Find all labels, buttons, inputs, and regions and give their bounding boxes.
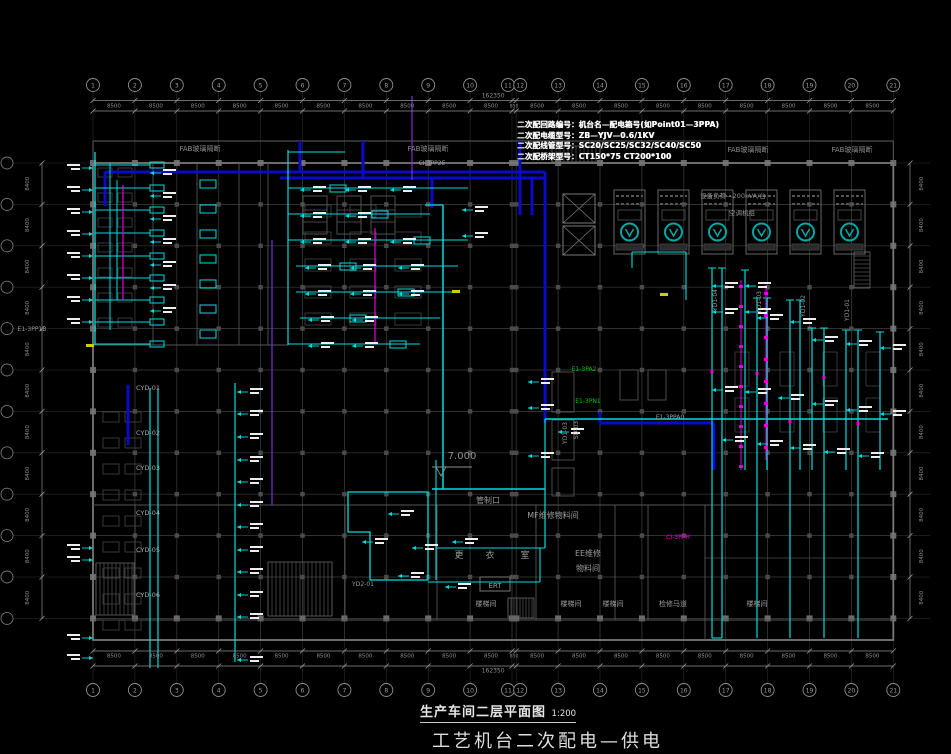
fab-zone-label: FAB玻璃隔断 xyxy=(832,145,873,154)
axis-bubble-bottom: 5 xyxy=(259,687,263,694)
axis-bubble-top: 10 xyxy=(466,82,474,89)
side-dim-left: 8400 xyxy=(25,342,31,356)
bay-dim-top: 8500 xyxy=(233,104,247,110)
side-dim-right: 8400 xyxy=(919,300,925,314)
circuit-tag: YD2-01 xyxy=(351,581,374,588)
title-block: 生产车间二层平面图 1:200 工艺机台二次配电—供电 xyxy=(420,701,663,753)
axis-bubble-top: 6 xyxy=(301,82,305,89)
bay-dim-top: 850 xyxy=(510,104,519,110)
room-label: 管制口 xyxy=(476,495,500,505)
bay-dim-bottom: 8500 xyxy=(865,654,879,660)
room-label: 楼梯间 xyxy=(747,599,768,608)
side-dim-right: 8400 xyxy=(919,425,925,439)
axis-bubble-bottom: 16 xyxy=(680,687,688,694)
machine-tag: CYD-04 xyxy=(136,509,160,517)
equipment-note: 空调机组 xyxy=(729,208,756,217)
side-dim-left: 8400 xyxy=(25,590,31,604)
bay-dim-top: 8500 xyxy=(484,104,498,110)
circuit-tag: YD1-01 xyxy=(844,299,851,322)
side-dim-right: 8400 xyxy=(919,507,925,521)
bay-dim-top: 8500 xyxy=(107,104,121,110)
axis-bubble-bottom: 20 xyxy=(848,687,856,694)
bay-dim-bottom: 8500 xyxy=(107,654,121,660)
axis-bubble-top: 3 xyxy=(175,82,179,89)
side-dim-left: 8400 xyxy=(25,549,31,563)
bay-dim-top: 8500 xyxy=(149,104,163,110)
bay-dim-bottom: 8500 xyxy=(191,654,205,660)
bay-dim-bottom: 8500 xyxy=(316,654,330,660)
room-label: 楼梯间 xyxy=(476,599,497,608)
axis-bubble-bottom: 8 xyxy=(384,687,388,694)
bay-dim-top: 8500 xyxy=(865,104,879,110)
bay-dim-bottom: 8500 xyxy=(358,654,372,660)
machine-tag: CYD-06 xyxy=(136,591,160,599)
axis-bubble-top: 19 xyxy=(806,82,814,89)
room-label: 更 xyxy=(454,550,463,561)
side-dim-left: 8400 xyxy=(25,176,31,190)
circuit-tag: E1-3PP1B xyxy=(18,326,47,333)
axis-bubble-top: 13 xyxy=(554,82,562,89)
total-dim-top: 162350 xyxy=(482,93,505,100)
axis-bubble-top: 5 xyxy=(259,82,263,89)
machine-tag: CYD-02 xyxy=(136,429,160,437)
side-dim-right: 8400 xyxy=(919,549,925,563)
total-dim-bottom: 162350 xyxy=(482,668,505,675)
legend-line: 二次配回路编号：机台名—配电箱号(如Point01—3PPA) xyxy=(517,120,719,131)
side-dim-left: 8400 xyxy=(25,383,31,397)
axis-bubble-top: 2 xyxy=(133,82,137,89)
bay-dim-bottom: 8500 xyxy=(275,654,289,660)
axis-bubble-bottom: 4 xyxy=(217,687,221,694)
bay-dim-top: 8500 xyxy=(823,104,837,110)
bay-dim-top: 8500 xyxy=(400,104,414,110)
axis-bubble-top: 16 xyxy=(680,82,688,89)
axis-bubble-top: 17 xyxy=(722,82,730,89)
circuit-tag: SD-03 xyxy=(573,421,580,439)
axis-bubble-top: 4 xyxy=(217,82,221,89)
axis-bubble-top: 18 xyxy=(764,82,772,89)
bay-dim-top: 8500 xyxy=(572,104,586,110)
drawing-title: 生产车间二层平面图 xyxy=(420,705,546,720)
bay-dim-top: 8500 xyxy=(782,104,796,110)
axis-bubble-top: 21 xyxy=(889,82,897,89)
circuit-tag: CI-3PP2E xyxy=(419,160,446,167)
bay-dim-top: 8500 xyxy=(316,104,330,110)
bay-dim-bottom: 8500 xyxy=(442,654,456,660)
axis-bubble-bottom: 1 xyxy=(91,687,95,694)
side-dim-left: 8400 xyxy=(25,466,31,480)
side-dim-left: 8400 xyxy=(25,259,31,273)
legend-line: 二次配桥架型号：CT150*75 CT200*100 xyxy=(517,152,719,163)
side-dim-right: 8400 xyxy=(919,342,925,356)
bay-dim-bottom: 8500 xyxy=(740,654,754,660)
bay-dim-bottom: 8500 xyxy=(572,654,586,660)
floor-plan-drawing: 1234567891011121314151617181920211234567… xyxy=(0,0,951,754)
equipment-note: 设备负荷—200kVA/台 xyxy=(700,191,766,200)
elevation-value: 7.000 xyxy=(448,451,477,462)
side-dim-right: 8400 xyxy=(919,218,925,232)
bay-dim-bottom: 8500 xyxy=(656,654,670,660)
axis-bubble-bottom: 9 xyxy=(426,687,430,694)
fab-zone-label: FAB玻璃隔断 xyxy=(408,144,449,153)
room-label: 物料间 xyxy=(576,563,600,573)
axis-bubble-top: 1 xyxy=(91,82,95,89)
axis-bubble-bottom: 6 xyxy=(301,687,305,694)
axis-bubble-top: 14 xyxy=(596,82,604,89)
side-dim-right: 8400 xyxy=(919,466,925,480)
axis-bubble-top: 11 xyxy=(504,82,512,89)
axis-bubble-bottom: 17 xyxy=(722,687,730,694)
room-label: 检修马道 xyxy=(659,599,687,608)
legend-line: 二次配线管型号：SC20/SC25/SC32/SC40/SC50 xyxy=(517,141,719,152)
bay-dim-top: 8500 xyxy=(442,104,456,110)
machine-tag: CYD-03 xyxy=(136,464,160,472)
circuit-tag: CI-3PPH xyxy=(666,534,690,541)
machine-tag: CYD-01 xyxy=(136,384,160,392)
bay-dim-top: 8500 xyxy=(614,104,628,110)
room-label: ERT xyxy=(488,582,502,590)
circuit-tag: E1-3PN1 xyxy=(575,398,601,405)
axis-bubble-top: 15 xyxy=(638,82,646,89)
drawing-title-line: 生产车间二层平面图 1:200 xyxy=(420,701,576,723)
axis-bubble-top: 20 xyxy=(848,82,856,89)
legend-line: 二次配电缆型号：ZB—YJV—0.6/1KV xyxy=(517,131,719,142)
side-dim-right: 8400 xyxy=(919,590,925,604)
axis-bubble-bottom: 13 xyxy=(554,687,562,694)
cad-viewport: 1234567891011121314151617181920211234567… xyxy=(0,0,951,754)
circuit-tag: YD1-04 xyxy=(712,289,719,312)
legend-notes: 二次配回路编号：机台名—配电箱号(如Point01—3PPA)二次配电缆型号：Z… xyxy=(517,120,719,162)
axis-bubble-bottom: 2 xyxy=(133,687,137,694)
axis-bubble-top: 12 xyxy=(516,82,524,89)
axis-bubble-bottom: 12 xyxy=(516,687,524,694)
axis-bubble-top: 7 xyxy=(342,82,346,89)
axis-bubble-top: 9 xyxy=(426,82,430,89)
room-label: 衣 xyxy=(485,549,494,561)
side-dim-right: 8400 xyxy=(919,383,925,397)
bay-dim-bottom: 8500 xyxy=(698,654,712,660)
bay-dim-bottom: 8500 xyxy=(149,654,163,660)
circuit-tag: YD1-02 xyxy=(800,295,807,318)
circuit-lines-magenta xyxy=(86,96,860,505)
side-dim-right: 8400 xyxy=(919,176,925,190)
bay-dim-bottom: 8500 xyxy=(782,654,796,660)
bay-dim-top: 8500 xyxy=(698,104,712,110)
bay-dim-bottom: 8500 xyxy=(233,654,247,660)
side-dim-left: 8400 xyxy=(25,300,31,314)
bay-dim-bottom: 850 xyxy=(510,654,519,660)
drawing-labels: 管制口MF维修物料间EE维修物料间更衣室ERT楼梯间楼梯间楼梯间检修马道楼梯间F… xyxy=(18,144,873,608)
room-label: 楼梯间 xyxy=(603,599,624,608)
axis-bubble-bottom: 3 xyxy=(175,687,179,694)
fab-zone-label: FAB玻璃隔断 xyxy=(728,145,769,154)
bay-dim-top: 8500 xyxy=(191,104,205,110)
axis-bubble-bottom: 10 xyxy=(466,687,474,694)
machine-tag: CYD-05 xyxy=(136,546,160,554)
side-dim-left: 8400 xyxy=(25,218,31,232)
circuit-tag: E1-3PPA0 xyxy=(656,414,685,421)
bay-dim-bottom: 8500 xyxy=(400,654,414,660)
axis-bubble-bottom: 21 xyxy=(889,687,897,694)
axis-bubble-bottom: 18 xyxy=(764,687,772,694)
axis-bubble-bottom: 15 xyxy=(638,687,646,694)
circuit-tag: YD1-03 xyxy=(562,422,569,445)
bay-dim-top: 8500 xyxy=(530,104,544,110)
circuit-tag: E1-3PA2 xyxy=(572,366,597,373)
side-dim-left: 8400 xyxy=(25,425,31,439)
axis-bubble-bottom: 7 xyxy=(342,687,346,694)
bay-dim-top: 8500 xyxy=(740,104,754,110)
bay-dim-top: 8500 xyxy=(656,104,670,110)
axis-bubble-top: 8 xyxy=(384,82,388,89)
axis-bubble-bottom: 14 xyxy=(596,687,604,694)
bay-dim-top: 8500 xyxy=(275,104,289,110)
fab-zone-label: FAB玻璃隔断 xyxy=(180,144,221,153)
bay-dim-top: 8500 xyxy=(358,104,372,110)
axis-bubble-bottom: 11 xyxy=(504,687,512,694)
room-label: 楼梯间 xyxy=(561,599,582,608)
bay-dim-bottom: 8500 xyxy=(614,654,628,660)
drawing-scale: 1:200 xyxy=(552,709,577,719)
bay-dim-bottom: 8500 xyxy=(823,654,837,660)
room-label: MF维修物料间 xyxy=(527,510,579,520)
axis-bubble-bottom: 19 xyxy=(806,687,814,694)
circuit-tag: YD1-03 xyxy=(756,291,763,314)
room-label: EE维修 xyxy=(575,548,601,558)
drawing-subtitle: 工艺机台二次配电—供电 xyxy=(432,727,663,753)
room-label: 室 xyxy=(520,549,529,561)
side-dim-right: 8400 xyxy=(919,259,925,273)
bay-dim-bottom: 8500 xyxy=(484,654,498,660)
bay-dim-bottom: 8500 xyxy=(530,654,544,660)
side-dim-left: 8400 xyxy=(25,507,31,521)
